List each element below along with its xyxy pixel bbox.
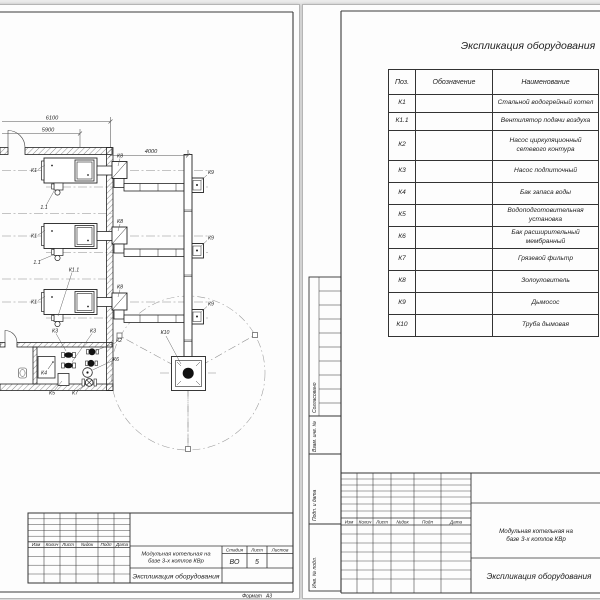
doc-title: Экспликация оборудования <box>487 572 592 581</box>
cell-designation <box>416 183 493 205</box>
stamp-col-data: Дата <box>449 519 463 524</box>
cell-pos: К7 <box>389 249 416 271</box>
cell-name: Вентилятор подачи воздуха <box>493 113 599 131</box>
stamp-col-izm: Изм <box>345 519 354 524</box>
cell-designation <box>416 113 493 131</box>
stamp-col-list: Лист <box>61 542 74 547</box>
label-k9: К9 <box>208 236 214 242</box>
label-k1: К1 <box>31 300 37 306</box>
sheets-label: Листов <box>271 548 289 553</box>
cell-name: Водоподготовительная установка <box>493 205 599 227</box>
cell-designation <box>416 315 493 337</box>
dim-offset: 4000 <box>145 149 158 155</box>
label-k3: К3 <box>90 329 96 335</box>
side-stamp-inv-ref: Взам. инв. № <box>312 420 318 452</box>
sheet-value: 5 <box>255 559 259 566</box>
doors <box>5 131 25 343</box>
cell-name: Насос циркуляционный сетевого контура <box>493 131 599 161</box>
cell-name: Бак запаса воды <box>493 183 599 205</box>
cell-designation <box>416 249 493 271</box>
stamp-col-kolich: Колич <box>46 542 59 547</box>
label-k1: К1 <box>31 168 37 174</box>
dim-overall: 6100 <box>46 116 59 122</box>
side-stamp-sign-date: Подп. и дата <box>312 489 318 521</box>
cell-pos: К9 <box>389 293 416 315</box>
table-row: К1.1Вентилятор подачи воздуха <box>389 113 599 131</box>
stage-value: ВО <box>230 559 241 566</box>
table-row: К7Грязевой фильтр <box>389 249 599 271</box>
cell-designation <box>416 161 493 183</box>
cell-pos: К1 <box>389 95 416 113</box>
cell-designation <box>416 95 493 113</box>
table-row: К5Водоподготовительная установка <box>389 205 599 227</box>
chimney <box>172 357 206 391</box>
label-k9: К9 <box>208 170 214 176</box>
cell-name: Дымосос <box>493 293 599 315</box>
label-k1-1: 1.1 <box>40 205 47 211</box>
label-k9: К9 <box>208 302 214 308</box>
table-header-row: Поз. Обозначение Наименование <box>389 70 599 95</box>
plan-drawing: 6100 5900 4000 К1 К1 К1 1.1 1.1 К1.1 К8 … <box>0 0 298 600</box>
stamp-col-list: Лист <box>375 519 388 524</box>
label-k1: К1 <box>31 234 37 240</box>
label-k6: К6 <box>113 357 119 363</box>
stamp-col-dok: №док <box>81 542 94 547</box>
label-k8: К8 <box>117 219 123 225</box>
filter-k7 <box>82 379 97 387</box>
side-stamp-inv-orig: Инв. № подл. <box>312 557 318 588</box>
cell-name: Бак расширительный мембранный <box>493 227 599 249</box>
format-value: А3 <box>265 594 272 600</box>
label-k10: К10 <box>161 330 170 336</box>
pump-k3 <box>62 352 76 358</box>
stamp-col-kolich: Колич <box>359 519 372 524</box>
sink-fixture <box>19 368 27 378</box>
cell-pos: К10 <box>389 315 416 337</box>
cell-designation <box>416 227 493 249</box>
table-row: К3Насос подпиточный <box>389 161 599 183</box>
col-pos: Поз. <box>389 70 416 95</box>
stage-label: Стадия <box>226 548 244 553</box>
table-row: К1Стальной водогрейный котел <box>389 95 599 113</box>
label-k3: К3 <box>52 329 58 335</box>
cell-pos: К2 <box>389 131 416 161</box>
cell-pos: К4 <box>389 183 416 205</box>
stamp-col-podp: Подп <box>422 519 433 524</box>
table-row: К2Насос циркуляционный сетевого контура <box>389 131 599 161</box>
stamp-col-izm: Изм <box>32 542 41 547</box>
table-title: Экспликация оборудования <box>423 40 600 52</box>
stamp-col-podp: Подп <box>101 542 112 547</box>
equipment-table: Поз. Обозначение Наименование К1Стальной… <box>388 69 599 337</box>
cell-name: Стальной водогрейный котел <box>493 95 599 113</box>
dim-inner: 5900 <box>42 128 55 134</box>
format-label: Формат <box>242 594 262 600</box>
col-designation: Обозначение <box>416 70 493 95</box>
pump-k3 <box>62 363 76 369</box>
cell-name: Насос подпиточный <box>493 161 599 183</box>
project-name-line1: Модульная котельная на <box>499 528 573 535</box>
pump-k2 <box>86 360 98 367</box>
table-row: К4Бак запаса воды <box>389 183 599 205</box>
label-k4: К4 <box>41 371 47 377</box>
cell-designation <box>416 293 493 315</box>
cell-name: Грязевой фильтр <box>493 249 599 271</box>
cell-designation <box>416 271 493 293</box>
pump-k2 <box>87 348 99 355</box>
label-k2: К2 <box>116 338 122 344</box>
project-name-line2: базе 3-х котлов КВр <box>148 559 205 565</box>
label-k1-1-full: К1.1 <box>69 268 79 274</box>
table-row: К9Дымосос <box>389 293 599 315</box>
table-row: К10Труба дымовая <box>389 315 599 337</box>
label-k1-1: 1.1 <box>33 260 40 266</box>
sheet-label: Лист <box>250 548 263 553</box>
cell-pos: К5 <box>389 205 416 227</box>
project-name-line1: Модульная котельная на <box>141 552 211 558</box>
cell-name: Золоуловитель <box>493 271 599 293</box>
label-k8: К8 <box>117 154 123 160</box>
cell-pos: К6 <box>389 227 416 249</box>
project-name-line2: базе 3-х котлов КВр <box>506 536 566 543</box>
cad-viewport: 6100 5900 4000 К1 К1 К1 1.1 1.1 К1.1 К8 … <box>0 0 600 600</box>
cell-designation <box>416 131 493 161</box>
cell-designation <box>416 205 493 227</box>
sheet-explication: Согласовано Взам. инв. № Подп. и дата Ин… <box>302 4 600 599</box>
doc-title: Экспликация оборудования <box>133 573 220 581</box>
label-k7: К7 <box>72 391 79 397</box>
membrane-tank-k6 <box>83 368 93 378</box>
col-name: Наименование <box>493 70 599 95</box>
equipment-room <box>38 348 99 386</box>
stamp-col-data: Дата <box>115 542 129 547</box>
table-row: К6Бак расширительный мембранный <box>389 227 599 249</box>
cell-name: Труба дымовая <box>493 315 599 337</box>
cell-pos: К8 <box>389 271 416 293</box>
stamp-col-dok: №док <box>396 519 409 524</box>
label-k8: К8 <box>117 285 123 291</box>
cell-pos: К1.1 <box>389 113 416 131</box>
cell-pos: К3 <box>389 161 416 183</box>
table-row: К8Золоуловитель <box>389 271 599 293</box>
flue-collector <box>184 155 192 374</box>
label-k5: К5 <box>49 391 55 397</box>
side-stamp-agreed: Согласовано <box>312 382 318 413</box>
